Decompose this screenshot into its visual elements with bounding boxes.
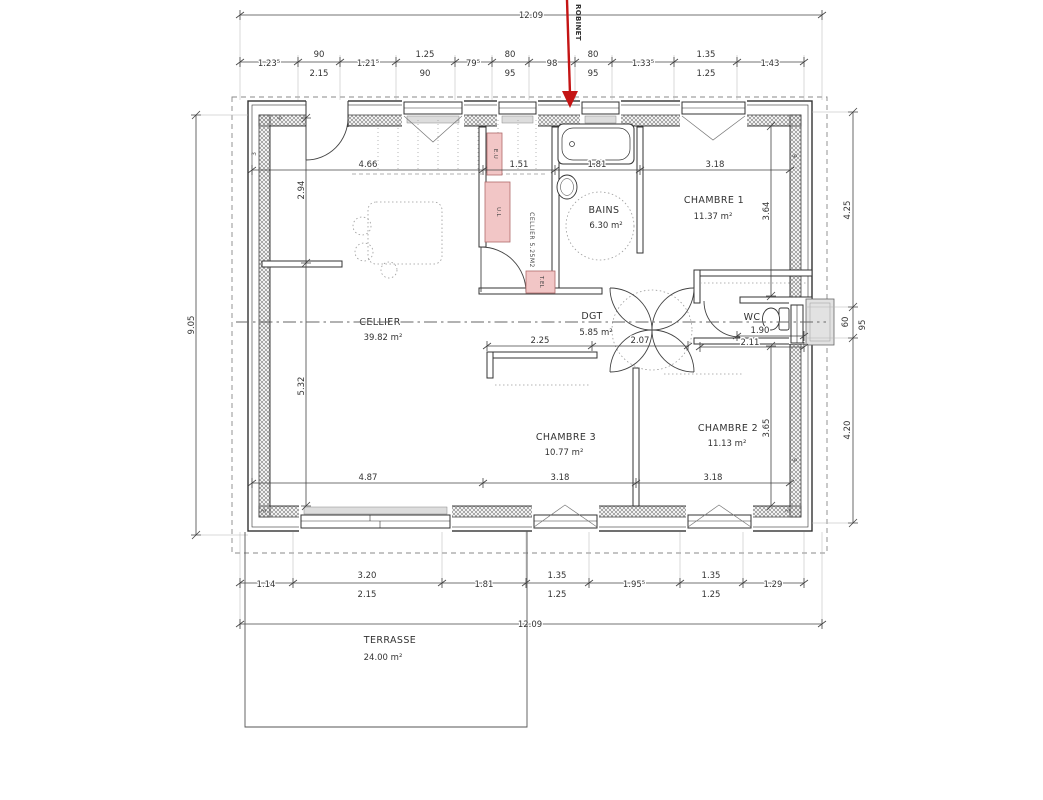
room-labels-underlay: CELLIER DGT xyxy=(359,311,602,328)
dim-bottom-chain-8: 1.25 xyxy=(702,590,721,600)
room-label-chambre3: CHAMBRE 3 xyxy=(536,432,596,443)
dim-top-chain-8: 95 xyxy=(505,69,516,79)
dim-ch3-top-w: 2.25 xyxy=(531,336,550,346)
window-chambre3 xyxy=(532,504,599,532)
dim-cellier-h-bot: 5.32 xyxy=(297,377,307,396)
dim-top-chain-15: 1.43 xyxy=(761,59,780,69)
dim-top-chain-10: 80 xyxy=(588,50,599,60)
dim-bains-w: 1.81 xyxy=(588,160,607,170)
dim-bottom-chain-6: 1.95⁵ xyxy=(623,580,645,590)
dim-left-overall: 9.05 xyxy=(187,316,197,335)
robinet-label: ROBINET xyxy=(574,4,582,41)
wall-mark-2: 6 xyxy=(792,154,799,158)
room-area-chambre1: 11.37 m² xyxy=(694,212,733,222)
dim-top-chain-5: 90 xyxy=(420,69,431,79)
bathtub xyxy=(558,124,634,164)
site-boundary xyxy=(232,97,827,553)
wall-marks: 6 3 6 3 3 6 xyxy=(251,116,799,513)
room-label-cellier: CELLIER xyxy=(359,317,400,328)
dim-top-chain-3: 1.21⁵ xyxy=(357,59,379,69)
dim-top-chain-14: 1.25 xyxy=(697,69,716,79)
room-area-terrasse: 24.00 m² xyxy=(364,653,403,663)
dim-right-2: 95 xyxy=(858,320,868,331)
room-label-chambre2: CHAMBRE 2 xyxy=(698,423,758,434)
dim-cellier-w: 4.66 xyxy=(359,160,378,170)
dim-top-chain-9: 98 xyxy=(547,59,558,69)
dim-right-0: 4.25 xyxy=(843,201,853,220)
dim-top-chain-1: 90 xyxy=(314,50,325,60)
entrance-door-opening xyxy=(306,100,348,127)
terrasse: TERRASSE 24.00 m² xyxy=(245,531,527,727)
window-closet xyxy=(497,99,538,127)
room-label-dgt: DGT xyxy=(581,311,602,322)
dim-bottom-overall: 12.09 xyxy=(518,620,542,630)
dim-bottom-chain-9: 1.29 xyxy=(764,580,783,590)
dim-top-chain-4: 1.25 xyxy=(416,50,435,60)
dim-bottom-chain-5: 1.25 xyxy=(548,590,567,600)
dim-top-chain-13: 1.35 xyxy=(697,50,716,60)
room-label-bains: BAINS xyxy=(589,205,620,216)
room-area-chambre2: 11.13 m² xyxy=(708,439,747,449)
annotation-arrow: ROBINET xyxy=(562,0,582,108)
wall-mark-5: 6 xyxy=(792,458,799,462)
dim-cellier-bot-w: 4.87 xyxy=(359,473,378,483)
kitchen-wall-stub xyxy=(262,261,342,267)
room-area-chambre3: 10.77 m² xyxy=(545,448,584,458)
dim-bottom-chain-1: 3.20 xyxy=(358,571,377,581)
ul-label: U.L xyxy=(495,207,501,217)
dim-top-overall: 12.09 xyxy=(519,11,543,21)
exterior-walls xyxy=(248,101,812,531)
wall-mark-3: 3 xyxy=(261,509,268,513)
red-arrow-line xyxy=(567,0,570,94)
table-dotted xyxy=(368,202,442,264)
dim-ch3-w: 3.18 xyxy=(551,473,570,483)
dim-ch1-h: 3.64 xyxy=(762,202,772,221)
wall-mark-4: 3 xyxy=(785,509,792,513)
dim-dgt-w: 2.07 xyxy=(631,336,650,346)
chair-dotted xyxy=(355,243,373,261)
dim-top-chain-0: 1.23⁵ xyxy=(258,59,280,69)
dim-top-chain-12: 1.33⁵ xyxy=(632,59,654,69)
dim-bottom-chain-2: 2.15 xyxy=(358,590,377,600)
dim-bottom-chain-4: 1.35 xyxy=(548,571,567,581)
window-slider-cellier xyxy=(299,504,452,532)
dim-wc-w1: 1.90 xyxy=(751,326,770,336)
dim-bottom-chain-0: 1.14 xyxy=(257,580,276,590)
dim-closet-w: 1.51 xyxy=(510,160,529,170)
window-chambre2 xyxy=(686,504,753,532)
room-label-chambre1: CHAMBRE 1 xyxy=(684,195,744,206)
dim-ch2-h: 3.65 xyxy=(762,419,772,438)
room-area-cellier: 39.82 m² xyxy=(364,333,403,343)
dim-right-3: 4.20 xyxy=(843,421,853,440)
room-label-closet: CELLIER 5.25M2 xyxy=(528,212,535,268)
dgt-door-arcs xyxy=(610,288,694,372)
dim-bottom-chain-3: 1.81 xyxy=(475,580,494,590)
dim-top-chain-11: 95 xyxy=(588,69,599,79)
window-chambre1 xyxy=(680,99,747,140)
room-label-terrasse: TERRASSE xyxy=(363,635,416,646)
dim-wc-w2: 2.11 xyxy=(741,338,760,348)
eu-label: E.U xyxy=(492,149,498,159)
wall-mark-1: 3 xyxy=(251,152,258,156)
room-area-bains: 6.30 m² xyxy=(589,221,622,231)
tel-label: T.EL xyxy=(538,275,544,289)
red-arrow-head xyxy=(562,91,578,108)
dim-top-chain-6: 79⁵ xyxy=(466,59,480,69)
floorplan-page: CELLIER DGT xyxy=(0,0,1043,800)
dim-right-1: 60 xyxy=(841,317,851,328)
wc-door-arc xyxy=(704,301,740,337)
room-area-dgt: 5.85 m² xyxy=(579,328,612,338)
dim-bottom-chain-7: 1.35 xyxy=(702,571,721,581)
dim-top-chain-7: 80 xyxy=(505,50,516,60)
floorplan-drawing: CELLIER DGT xyxy=(0,0,1043,800)
dim-top-chain-2: 2.15 xyxy=(310,69,329,79)
closet-door-arc xyxy=(481,247,526,292)
washbasin xyxy=(557,175,577,199)
dim-cellier-h-top: 2.94 xyxy=(297,181,307,200)
room-labels: 39.82 m² BAINS 6.30 m² CHAMBRE 1 11.37 m… xyxy=(364,195,761,458)
dim-ch1-w: 3.18 xyxy=(706,160,725,170)
interior-walls xyxy=(262,127,812,506)
wall-mark-0: 6 xyxy=(277,116,284,120)
window-bains xyxy=(580,99,621,127)
dim-ch2-w: 3.18 xyxy=(704,473,723,483)
room-label-wc: WC xyxy=(744,312,761,323)
